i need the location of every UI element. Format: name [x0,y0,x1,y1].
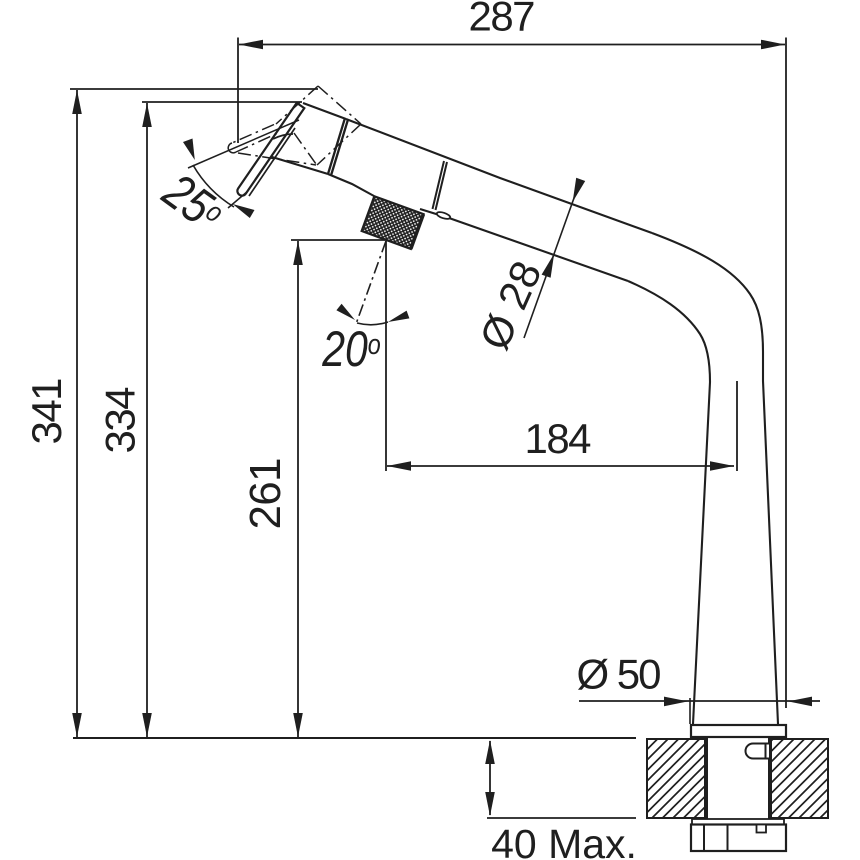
svg-text:261: 261 [241,458,290,530]
svg-text:334: 334 [97,387,144,454]
svg-text:287: 287 [469,0,536,40]
svg-text:Ø 50: Ø 50 [577,651,662,698]
svg-text:40 Max.: 40 Max. [491,821,637,860]
svg-text:184: 184 [525,415,592,462]
svg-text:341: 341 [23,378,70,445]
